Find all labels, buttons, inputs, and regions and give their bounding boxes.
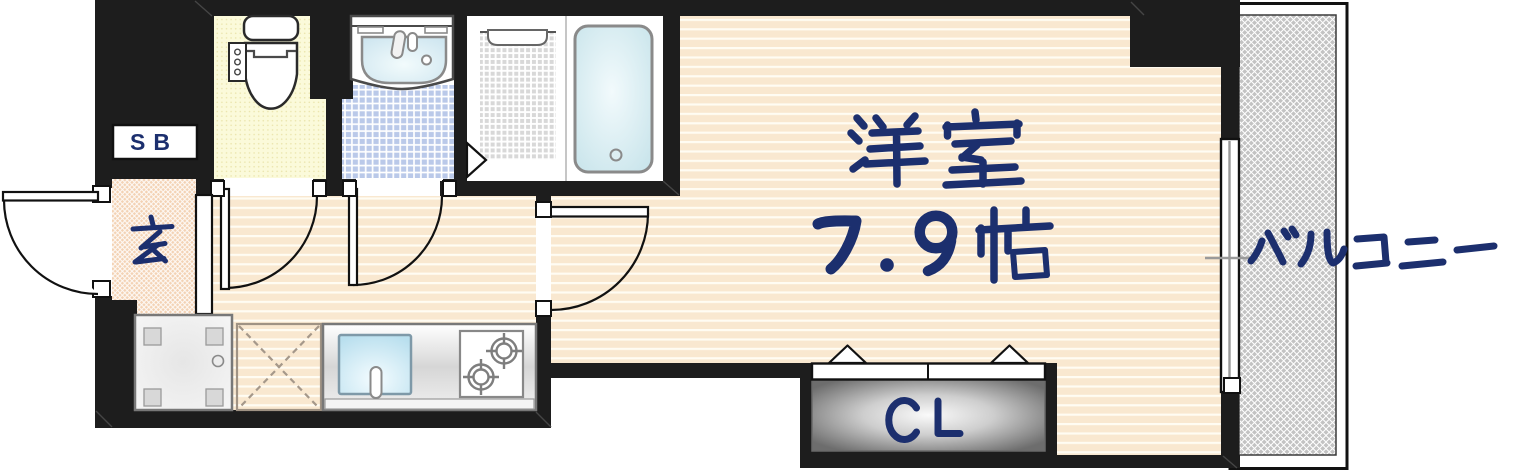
svg-text:SB: SB	[130, 129, 178, 155]
